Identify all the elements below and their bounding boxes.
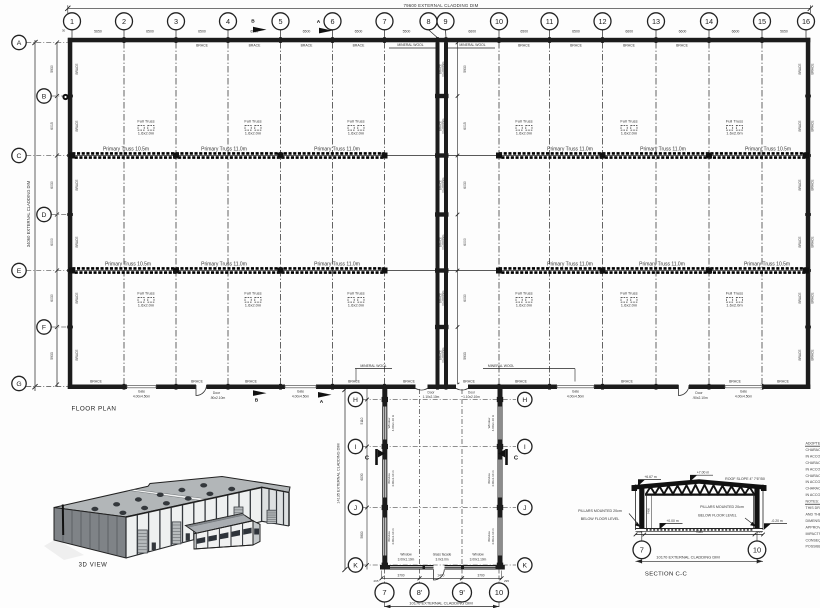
- svg-text:BRACE: BRACE: [676, 44, 688, 48]
- svg-text:Full Truss: Full Truss: [515, 119, 532, 124]
- svg-text:BRACE: BRACE: [777, 380, 789, 384]
- svg-text:CONSEQUE: CONSEQUE: [806, 538, 820, 542]
- svg-text:BRACE: BRACE: [463, 380, 475, 384]
- svg-text:BELOW FLOOR LEVEL: BELOW FLOOR LEVEL: [581, 517, 620, 521]
- svg-text:295: 295: [504, 579, 509, 583]
- svg-text:Gate: Gate: [138, 390, 145, 394]
- svg-text:Full Truss: Full Truss: [726, 119, 743, 124]
- svg-text:12: 12: [598, 17, 606, 26]
- svg-text:D: D: [42, 212, 47, 219]
- svg-text:Door: Door: [468, 390, 476, 394]
- svg-text:4.00x1.10 m: 4.00x1.10 m: [391, 528, 395, 545]
- svg-text:14: 14: [705, 17, 713, 26]
- svg-text:1.10x2.10m: 1.10x2.10m: [423, 395, 440, 399]
- svg-text:1.6x2.0m: 1.6x2.0m: [348, 131, 365, 136]
- svg-text:Window: Window: [472, 552, 484, 556]
- svg-text:4.00x1.10 m: 4.00x1.10 m: [491, 414, 495, 431]
- svg-text:BRACE: BRACE: [811, 180, 815, 191]
- svg-text:6030: 6030: [50, 181, 54, 189]
- svg-text:1.6x2.0m: 1.6x2.0m: [726, 131, 743, 136]
- svg-text:BRACE: BRACE: [353, 44, 365, 48]
- svg-text:CLADDING: CLADDING: [441, 118, 445, 134]
- svg-text:5933: 5933: [50, 352, 54, 360]
- svg-text:BRACE: BRACE: [348, 380, 360, 384]
- svg-text:BRACE: BRACE: [75, 121, 79, 132]
- svg-text:BRACE: BRACE: [798, 121, 802, 132]
- svg-text:+6.67 m: +6.67 m: [644, 475, 657, 479]
- svg-text:BELOW FLOOR LEVEL: BELOW FLOOR LEVEL: [698, 514, 737, 518]
- svg-text:30: 30: [62, 29, 66, 33]
- svg-text:3.0x3.0m: 3.0x3.0m: [435, 558, 448, 562]
- svg-text:Full Truss: Full Truss: [244, 291, 261, 296]
- svg-text:BRACE: BRACE: [191, 380, 203, 384]
- svg-text:ROOF SLOPE 4° 7'6"/50: ROOF SLOPE 4° 7'6"/50: [725, 477, 765, 481]
- svg-text:BRACE: BRACE: [90, 380, 102, 384]
- svg-text:BRACE: BRACE: [798, 180, 802, 191]
- svg-text:BRACE: BRACE: [301, 44, 313, 48]
- svg-text:6030: 6030: [463, 294, 467, 302]
- svg-text:Full Truss: Full Truss: [137, 119, 154, 124]
- svg-text:6030: 6030: [360, 473, 364, 480]
- svg-text:6500: 6500: [355, 29, 363, 33]
- svg-text:Full Truss: Full Truss: [347, 119, 364, 124]
- svg-text:BRACE: BRACE: [623, 44, 635, 48]
- svg-text:BRACE: BRACE: [515, 380, 527, 384]
- svg-text:7: 7: [382, 588, 386, 597]
- svg-text:16: 16: [802, 17, 810, 26]
- svg-text:4.00x4.50m: 4.00x4.50m: [133, 395, 150, 399]
- svg-text:BRACE: BRACE: [403, 380, 415, 384]
- svg-text:C: C: [17, 153, 22, 160]
- svg-text:K: K: [353, 562, 358, 569]
- svg-text:Full Truss: Full Truss: [137, 291, 154, 296]
- svg-text:MINERAL WOOL: MINERAL WOOL: [360, 364, 386, 368]
- svg-text:.90x2.10m: .90x2.10m: [210, 396, 226, 400]
- svg-text:BRACE: BRACE: [811, 350, 815, 361]
- svg-text:PILLARS MOUNTED 20cm: PILLARS MOUNTED 20cm: [700, 505, 744, 509]
- svg-text:5: 5: [278, 17, 282, 26]
- svg-text:A: A: [17, 40, 22, 47]
- svg-text:10: 10: [753, 546, 761, 555]
- svg-text:B: B: [251, 19, 255, 25]
- svg-text:6500: 6500: [146, 29, 154, 33]
- svg-text:10: 10: [495, 17, 503, 26]
- svg-text:1.6x2.0m: 1.6x2.0m: [138, 303, 155, 308]
- svg-text:Primary Truss 11.0m: Primary Truss 11.0m: [639, 262, 685, 268]
- svg-text:6030: 6030: [50, 294, 54, 302]
- svg-text:IN ACCORD: IN ACCORD: [806, 454, 820, 458]
- svg-text:Full Truss: Full Truss: [620, 119, 637, 124]
- svg-text:BRACE: BRACE: [798, 237, 802, 248]
- svg-text:PILLARS MOUNTED 20cm: PILLARS MOUNTED 20cm: [578, 509, 622, 513]
- svg-text:Primary Truss 11.0m: Primary Truss 11.0m: [314, 147, 360, 153]
- svg-text:6600: 6600: [732, 29, 740, 33]
- svg-text:11: 11: [546, 17, 554, 26]
- svg-text:Primary Truss 10.5m: Primary Truss 10.5m: [105, 262, 151, 268]
- svg-text:IN ACCORD: IN ACCORD: [806, 493, 820, 497]
- svg-text:1.6x2.0m: 1.6x2.0m: [621, 303, 638, 308]
- svg-text:E: E: [17, 268, 22, 275]
- svg-text:1.10x2.10m: 1.10x2.10m: [463, 395, 480, 399]
- svg-text:9': 9': [459, 588, 465, 597]
- svg-text:1.6x2.0m: 1.6x2.0m: [726, 303, 743, 308]
- svg-text:9: 9: [443, 17, 447, 26]
- svg-text:5650: 5650: [94, 29, 102, 33]
- svg-text:8': 8': [417, 588, 423, 597]
- svg-text:6500: 6500: [303, 29, 311, 33]
- svg-text:3700: 3700: [477, 574, 484, 578]
- svg-text:Door: Door: [213, 391, 221, 395]
- svg-text:4.00x1.10 m: 4.00x1.10 m: [491, 470, 495, 487]
- svg-text:BRACE: BRACE: [811, 237, 815, 248]
- svg-text:Full Truss: Full Truss: [515, 291, 532, 296]
- svg-text:+7.00 m: +7.00 m: [697, 470, 710, 474]
- svg-text:BRACE: BRACE: [75, 64, 79, 75]
- svg-text:10170 EXTERNAL CLADDING DIM: 10170 EXTERNAL CLADDING DIM: [409, 600, 472, 605]
- svg-text:Gate: Gate: [740, 390, 747, 394]
- svg-text:CLADDING: CLADDING: [441, 177, 445, 193]
- svg-text:MINERAL WOOL: MINERAL WOOL: [459, 43, 485, 47]
- svg-text:SECTION C-C: SECTION C-C: [645, 572, 688, 578]
- svg-text:J: J: [523, 505, 526, 512]
- svg-text:14135 EXTERNAL CLADDING DIM: 14135 EXTERNAL CLADDING DIM: [337, 443, 341, 503]
- svg-text:BRACE: BRACE: [196, 44, 208, 48]
- svg-text:295: 295: [636, 530, 641, 534]
- svg-text:9580: 9580: [696, 530, 703, 534]
- svg-text:6030: 6030: [463, 181, 467, 189]
- svg-text:Gate: Gate: [572, 390, 579, 394]
- svg-text:H: H: [353, 397, 358, 404]
- svg-text:CLADDING: CLADDING: [441, 290, 445, 306]
- svg-text:Primary Truss 11.0m: Primary Truss 11.0m: [201, 147, 247, 153]
- svg-text:3700: 3700: [397, 574, 404, 578]
- svg-text:I: I: [524, 444, 526, 451]
- svg-text:1.6x2.0m: 1.6x2.0m: [621, 131, 638, 136]
- svg-text:6500: 6500: [520, 29, 528, 33]
- svg-text:4.00x4.50m: 4.00x4.50m: [567, 395, 584, 399]
- svg-text:7400: 7400: [647, 507, 651, 514]
- svg-text:+0.00 m: +0.00 m: [666, 519, 679, 523]
- svg-text:THIS DRAW: THIS DRAW: [806, 506, 820, 510]
- svg-text:BRACE: BRACE: [798, 293, 802, 304]
- svg-text:5930: 5930: [50, 65, 54, 73]
- svg-text:6500: 6500: [198, 29, 206, 33]
- svg-text:5800: 5800: [360, 531, 364, 538]
- svg-text:FLOOR PLAN: FLOOR PLAN: [72, 405, 117, 412]
- svg-text:1.6x2.0m: 1.6x2.0m: [245, 303, 262, 308]
- svg-text:F: F: [42, 324, 46, 331]
- svg-text:1.6x2.0m: 1.6x2.0m: [348, 303, 365, 308]
- svg-text:4.00x1.10 m: 4.00x1.10 m: [391, 470, 395, 487]
- svg-text:BRACE: BRACE: [621, 380, 633, 384]
- svg-text:NOTES:: NOTES:: [806, 500, 819, 504]
- svg-text:10: 10: [495, 588, 503, 597]
- svg-text:5933: 5933: [463, 352, 467, 360]
- svg-text:CLADDING: CLADDING: [441, 234, 445, 250]
- svg-text:Primary Truss 11.0m: Primary Truss 11.0m: [314, 262, 360, 268]
- svg-text:H: H: [522, 397, 527, 404]
- svg-text:POSSIBLE: POSSIBLE: [806, 545, 820, 549]
- svg-text:B: B: [42, 93, 47, 100]
- svg-text:CHARACTER: CHARACTER: [806, 461, 820, 465]
- svg-text:I: I: [355, 444, 357, 451]
- svg-text:-0.20 m: -0.20 m: [771, 519, 783, 523]
- svg-text:Full Truss: Full Truss: [620, 291, 637, 296]
- svg-text:Door: Door: [428, 390, 436, 394]
- svg-text:6500: 6500: [572, 29, 580, 33]
- svg-text:5930: 5930: [463, 65, 467, 73]
- svg-text:ADOPTED: ADOPTED: [806, 442, 820, 446]
- svg-text:BRACE: BRACE: [249, 44, 261, 48]
- svg-text:DIMENSION: DIMENSION: [806, 519, 820, 523]
- svg-text:6600: 6600: [625, 29, 633, 33]
- svg-text:34060 EXTERNAL CLADDING DIM: 34060 EXTERNAL CLADDING DIM: [26, 180, 31, 247]
- svg-text:4.00x4.50m: 4.00x4.50m: [292, 395, 309, 399]
- svg-text:6015: 6015: [50, 122, 54, 130]
- svg-text:79600 EXTERNAL CLADDING DIM: 79600 EXTERNAL CLADDING DIM: [403, 3, 478, 8]
- svg-text:BRACE: BRACE: [811, 293, 815, 304]
- svg-text:6000: 6000: [463, 238, 467, 246]
- svg-text:BRACE: BRACE: [811, 121, 815, 132]
- svg-text:G: G: [16, 381, 21, 388]
- svg-text:Primary Truss 10.5m: Primary Truss 10.5m: [103, 147, 149, 153]
- svg-text:1400: 1400: [437, 574, 444, 578]
- svg-text:BRACE: BRACE: [518, 44, 530, 48]
- svg-text:J: J: [354, 505, 357, 512]
- svg-text:IN ACCORD: IN ACCORD: [806, 467, 820, 471]
- svg-text:BRACE: BRACE: [798, 64, 802, 75]
- svg-text:MINERAL WOOL: MINERAL WOOL: [397, 43, 423, 47]
- svg-text:295: 295: [373, 579, 378, 583]
- svg-text:1.6x2.0m: 1.6x2.0m: [245, 131, 262, 136]
- svg-text:K: K: [523, 562, 528, 569]
- svg-text:BRACE: BRACE: [729, 380, 741, 384]
- svg-text:6600: 6600: [679, 29, 687, 33]
- svg-text:4.00x1.10 m: 4.00x1.10 m: [391, 414, 395, 431]
- svg-text:MINERAL WOOL: MINERAL WOOL: [488, 364, 514, 368]
- svg-text:3.00x1.10m: 3.00x1.10m: [470, 558, 487, 562]
- svg-text:B: B: [255, 398, 259, 404]
- svg-text:BRACE: BRACE: [811, 64, 815, 75]
- svg-text:Full Truss: Full Truss: [347, 291, 364, 296]
- svg-text:5650: 5650: [780, 29, 788, 33]
- svg-text:Primary Truss 10.5m: Primary Truss 10.5m: [745, 147, 791, 153]
- svg-text:10170 EXTERNAL CLADDING DIM: 10170 EXTERNAL CLADDING DIM: [656, 554, 719, 559]
- svg-text:295: 295: [757, 530, 762, 534]
- svg-text:IN ACCORD: IN ACCORD: [806, 480, 820, 484]
- svg-text:BRACE: BRACE: [245, 380, 257, 384]
- svg-text:Primary Truss 10.5m: Primary Truss 10.5m: [744, 262, 790, 268]
- svg-text:6: 6: [330, 17, 334, 26]
- svg-text:Window: Window: [400, 552, 412, 556]
- svg-text:Primary Truss 11.0m: Primary Truss 11.0m: [547, 147, 593, 153]
- svg-text:6015: 6015: [463, 122, 467, 130]
- svg-text:APPROVAL: APPROVAL: [806, 525, 820, 529]
- svg-text:1.6x2.0m: 1.6x2.0m: [516, 131, 533, 136]
- svg-text:CLADDING: CLADDING: [441, 61, 445, 77]
- svg-text:13: 13: [652, 17, 660, 26]
- svg-text:BRACE: BRACE: [798, 350, 802, 361]
- svg-text:1.6x2.0m: 1.6x2.0m: [138, 131, 155, 136]
- svg-text:3D VIEW: 3D VIEW: [79, 562, 108, 568]
- svg-text:.90x2.10m: .90x2.10m: [692, 396, 708, 400]
- svg-text:2: 2: [122, 17, 126, 26]
- svg-text:6000: 6000: [50, 238, 54, 246]
- svg-text:1: 1: [70, 17, 74, 26]
- svg-text:4: 4: [226, 17, 230, 26]
- svg-text:Gate: Gate: [297, 390, 304, 394]
- svg-text:BRACE: BRACE: [570, 44, 582, 48]
- svg-text:3: 3: [174, 17, 178, 26]
- svg-text:4.00x1.10 m: 4.00x1.10 m: [491, 528, 495, 545]
- svg-text:BRACE: BRACE: [75, 293, 79, 304]
- svg-text:Full Truss: Full Truss: [244, 119, 261, 124]
- svg-text:CLADDING: CLADDING: [441, 347, 445, 363]
- svg-text:Door: Door: [695, 391, 703, 395]
- svg-text:Primary Truss 11.0m: Primary Truss 11.0m: [547, 262, 593, 268]
- svg-text:7: 7: [382, 17, 386, 26]
- svg-text:3.00x1.10m: 3.00x1.10m: [398, 558, 415, 562]
- svg-text:IMPACTS A: IMPACTS A: [806, 532, 820, 536]
- svg-text:Glass facade: Glass facade: [433, 552, 452, 556]
- svg-text:BRACE: BRACE: [75, 237, 79, 248]
- svg-text:BRACE: BRACE: [75, 350, 79, 361]
- svg-text:6600: 6600: [468, 29, 476, 33]
- svg-text:CHARACTER: CHARACTER: [806, 448, 820, 452]
- svg-text:7: 7: [640, 546, 644, 555]
- svg-text:4.00x4.50m: 4.00x4.50m: [735, 395, 752, 399]
- svg-text:CHARACTER: CHARACTER: [806, 474, 820, 478]
- svg-text:Primary Truss 11.0m: Primary Truss 11.0m: [640, 147, 686, 153]
- svg-text:Full Truss: Full Truss: [726, 291, 743, 296]
- svg-text:A: A: [320, 399, 324, 405]
- svg-text:CHARACTER: CHARACTER: [806, 487, 820, 491]
- svg-text:AND THE D: AND THE D: [806, 512, 820, 516]
- svg-text:15: 15: [758, 17, 766, 26]
- svg-text:1.6x2.0m: 1.6x2.0m: [516, 303, 533, 308]
- svg-text:5500: 5500: [403, 29, 411, 33]
- svg-text:Primary Truss 11.0m: Primary Truss 11.0m: [201, 262, 247, 268]
- svg-text:A: A: [317, 19, 321, 25]
- svg-text:8: 8: [426, 17, 430, 26]
- svg-text:BRACE: BRACE: [75, 180, 79, 191]
- svg-text:5110: 5110: [360, 417, 364, 424]
